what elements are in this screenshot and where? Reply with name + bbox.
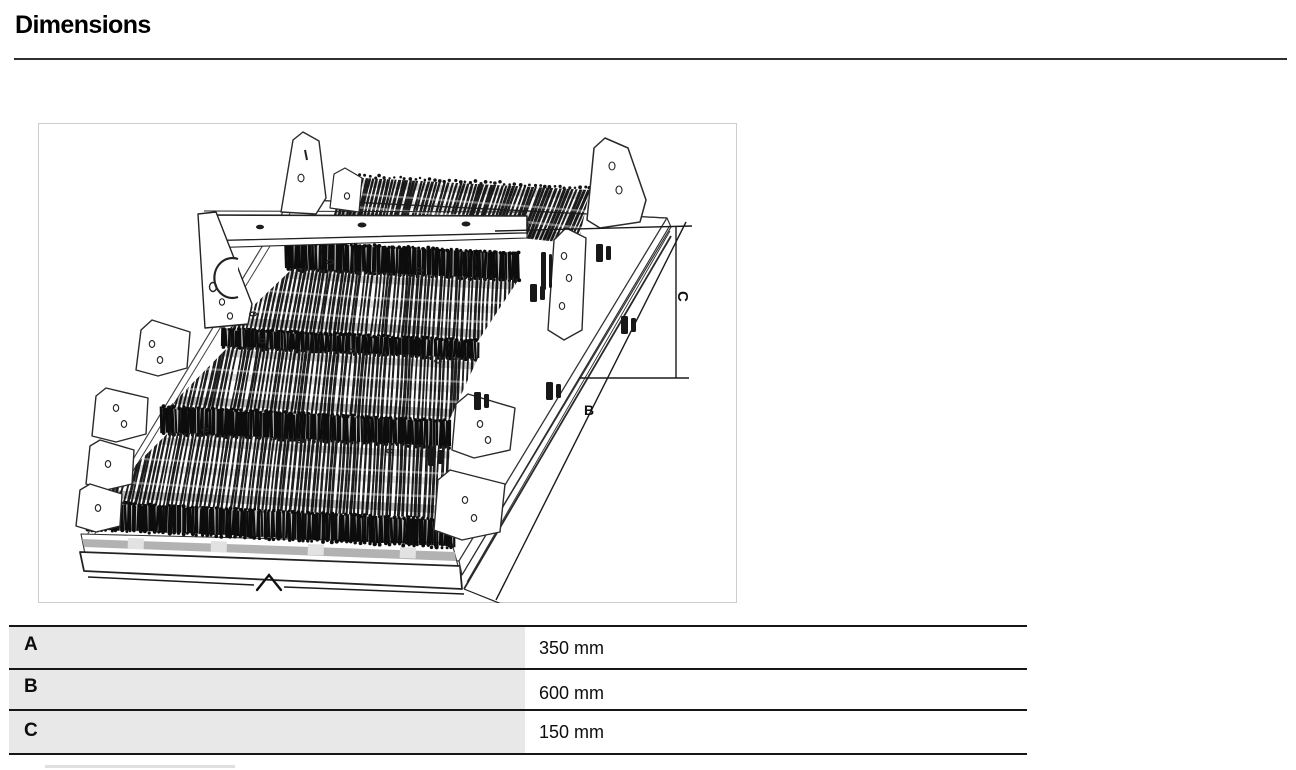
svg-text:C: C [674, 291, 691, 302]
svg-text:B: B [584, 402, 594, 418]
